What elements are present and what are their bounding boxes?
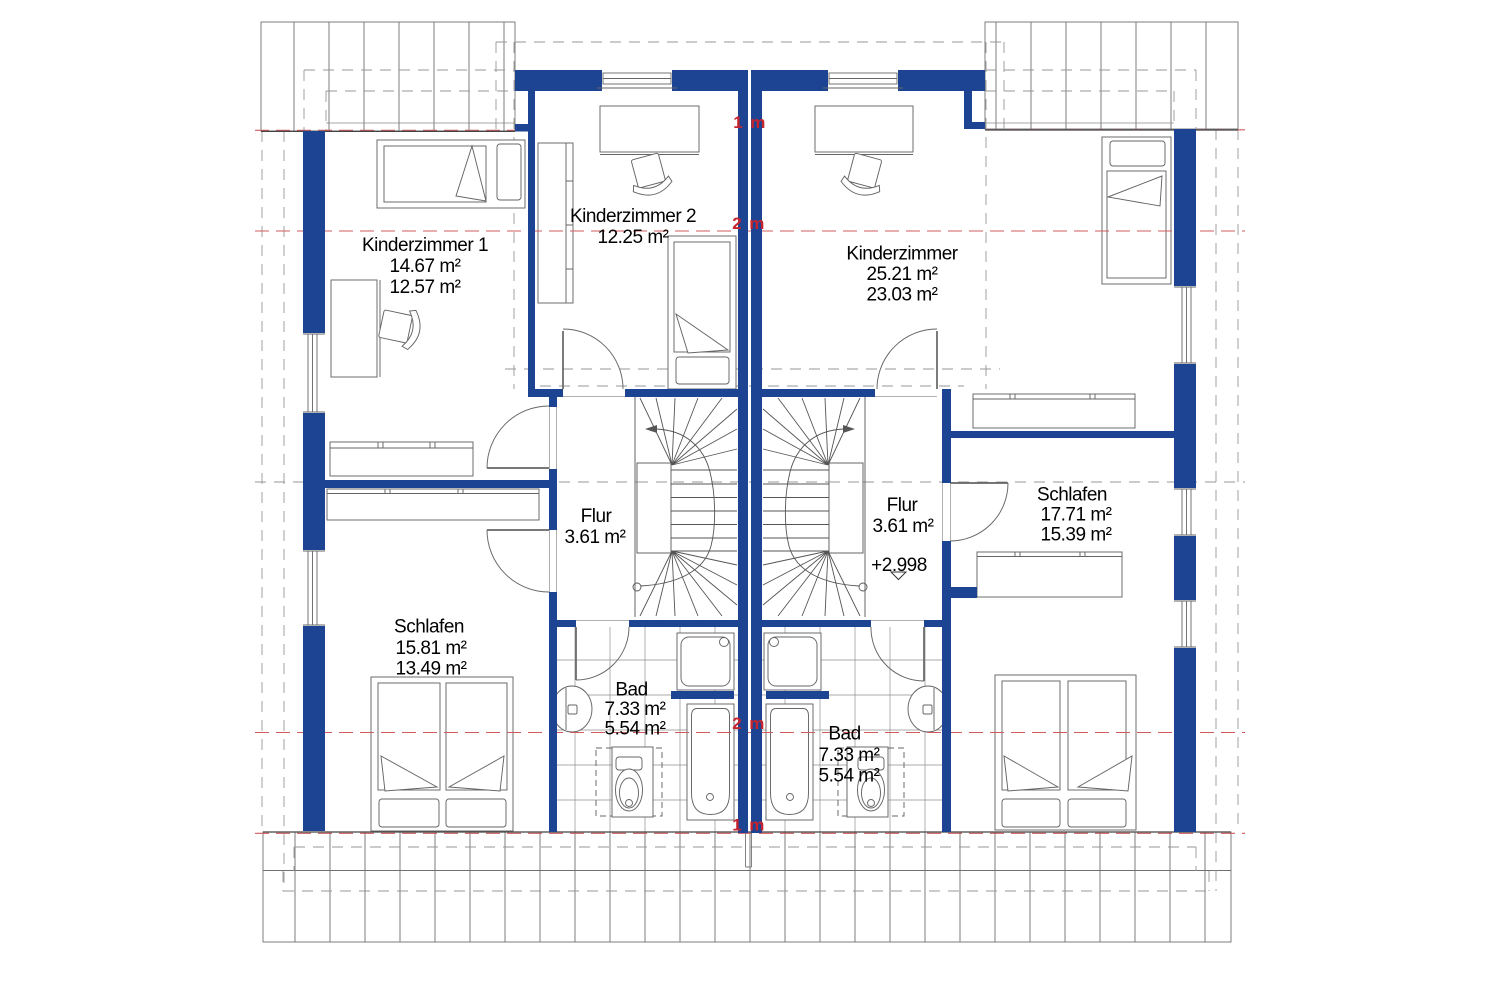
svg-text:23.03 m²: 23.03 m² [867,285,938,306]
svg-text:13.49 m²: 13.49 m² [396,659,467,680]
svg-text:5.54 m²: 5.54 m² [819,766,880,787]
svg-text:Kinderzimmer: Kinderzimmer [846,244,958,265]
svg-text:15.39 m²: 15.39 m² [1041,525,1112,546]
svg-text:3.61 m²: 3.61 m² [873,516,934,537]
svg-text:7.33 m²: 7.33 m² [819,745,880,766]
svg-text:15.81 m²: 15.81 m² [396,638,467,659]
svg-text:2 m: 2 m [732,714,766,733]
svg-text:3.61 m²: 3.61 m² [565,527,626,548]
svg-text:1 m: 1 m [733,113,767,132]
svg-text:17.71 m²: 17.71 m² [1041,505,1112,526]
svg-text:Schlafen: Schlafen [394,617,464,638]
svg-text:Flur: Flur [887,495,919,516]
svg-text:Bad: Bad [615,680,647,701]
svg-text:Schlafen: Schlafen [1037,485,1107,506]
svg-text:Kinderzimmer 2: Kinderzimmer 2 [570,206,696,227]
svg-text:25.21 m²: 25.21 m² [867,264,938,285]
svg-text:+2.998: +2.998 [871,555,927,576]
svg-text:14.67 m²: 14.67 m² [390,256,461,277]
svg-text:5.54 m²: 5.54 m² [605,719,666,740]
svg-text:7.33 m²: 7.33 m² [605,699,666,720]
svg-text:Bad: Bad [828,724,860,745]
svg-text:Kinderzimmer 1: Kinderzimmer 1 [362,235,488,256]
svg-text:12.57 m²: 12.57 m² [390,277,461,298]
svg-text:Flur: Flur [581,506,613,527]
svg-text:12.25 m²: 12.25 m² [598,227,669,248]
svg-text:2 m: 2 m [732,214,766,233]
svg-text:1 m: 1 m [732,816,766,835]
